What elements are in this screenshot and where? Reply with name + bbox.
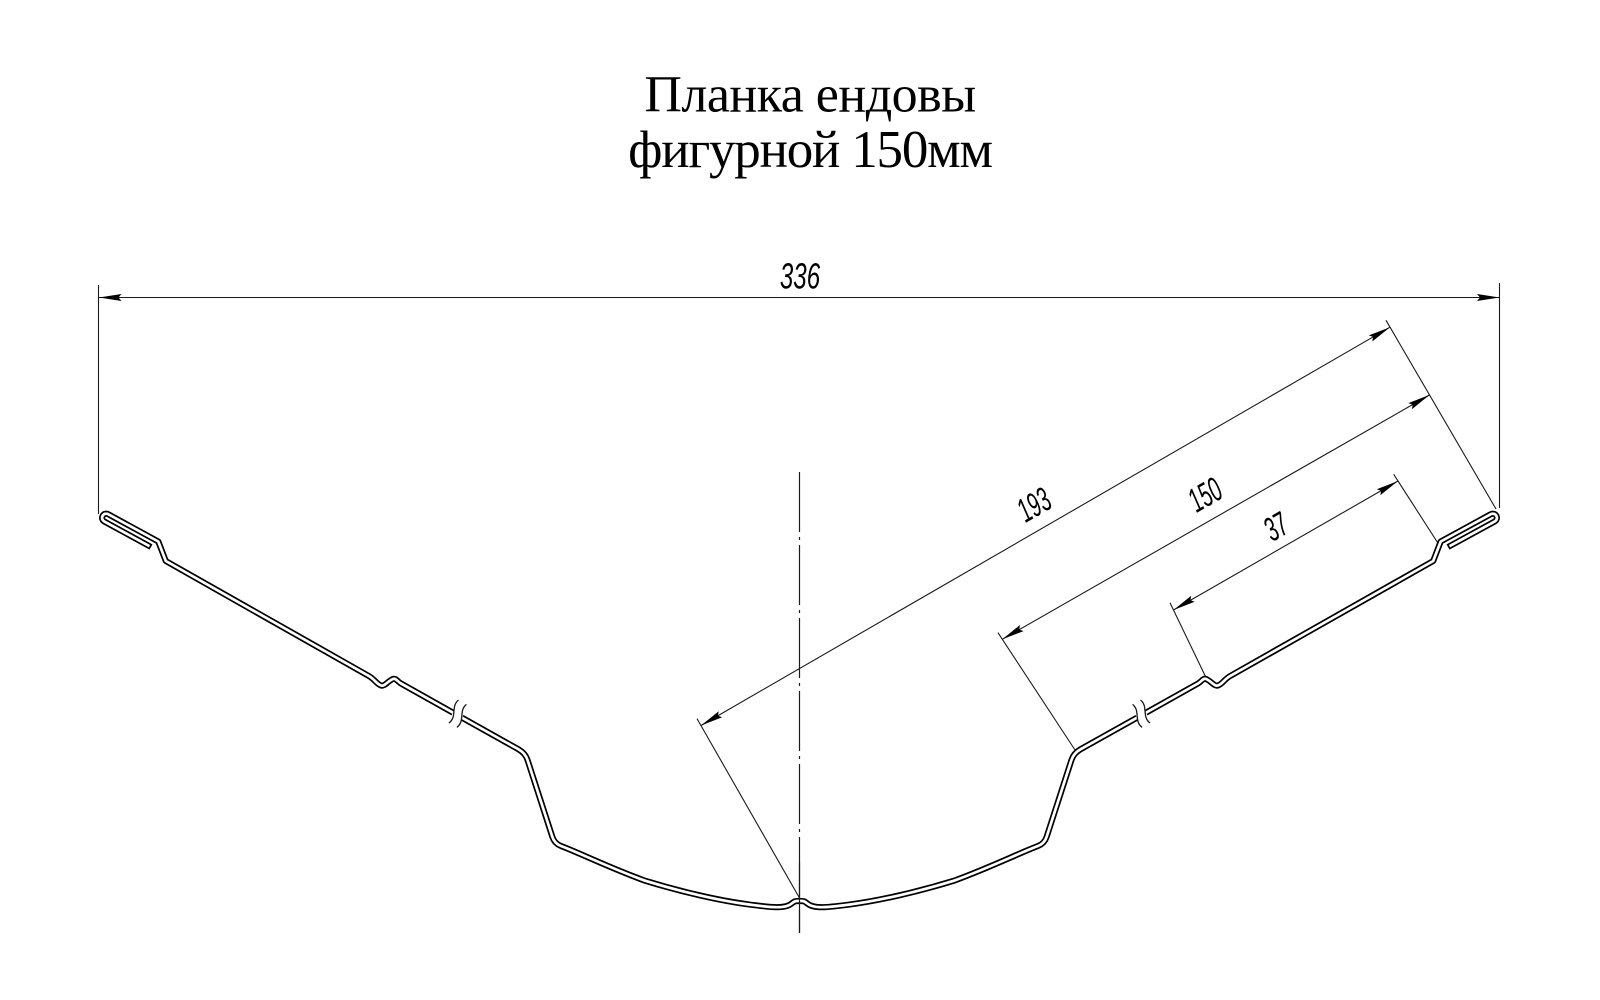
svg-text:336: 336 <box>780 255 821 296</box>
svg-text:фигурной 150мм: фигурной 150мм <box>628 121 992 179</box>
svg-text:Планка ендовы: Планка ендовы <box>644 67 975 124</box>
